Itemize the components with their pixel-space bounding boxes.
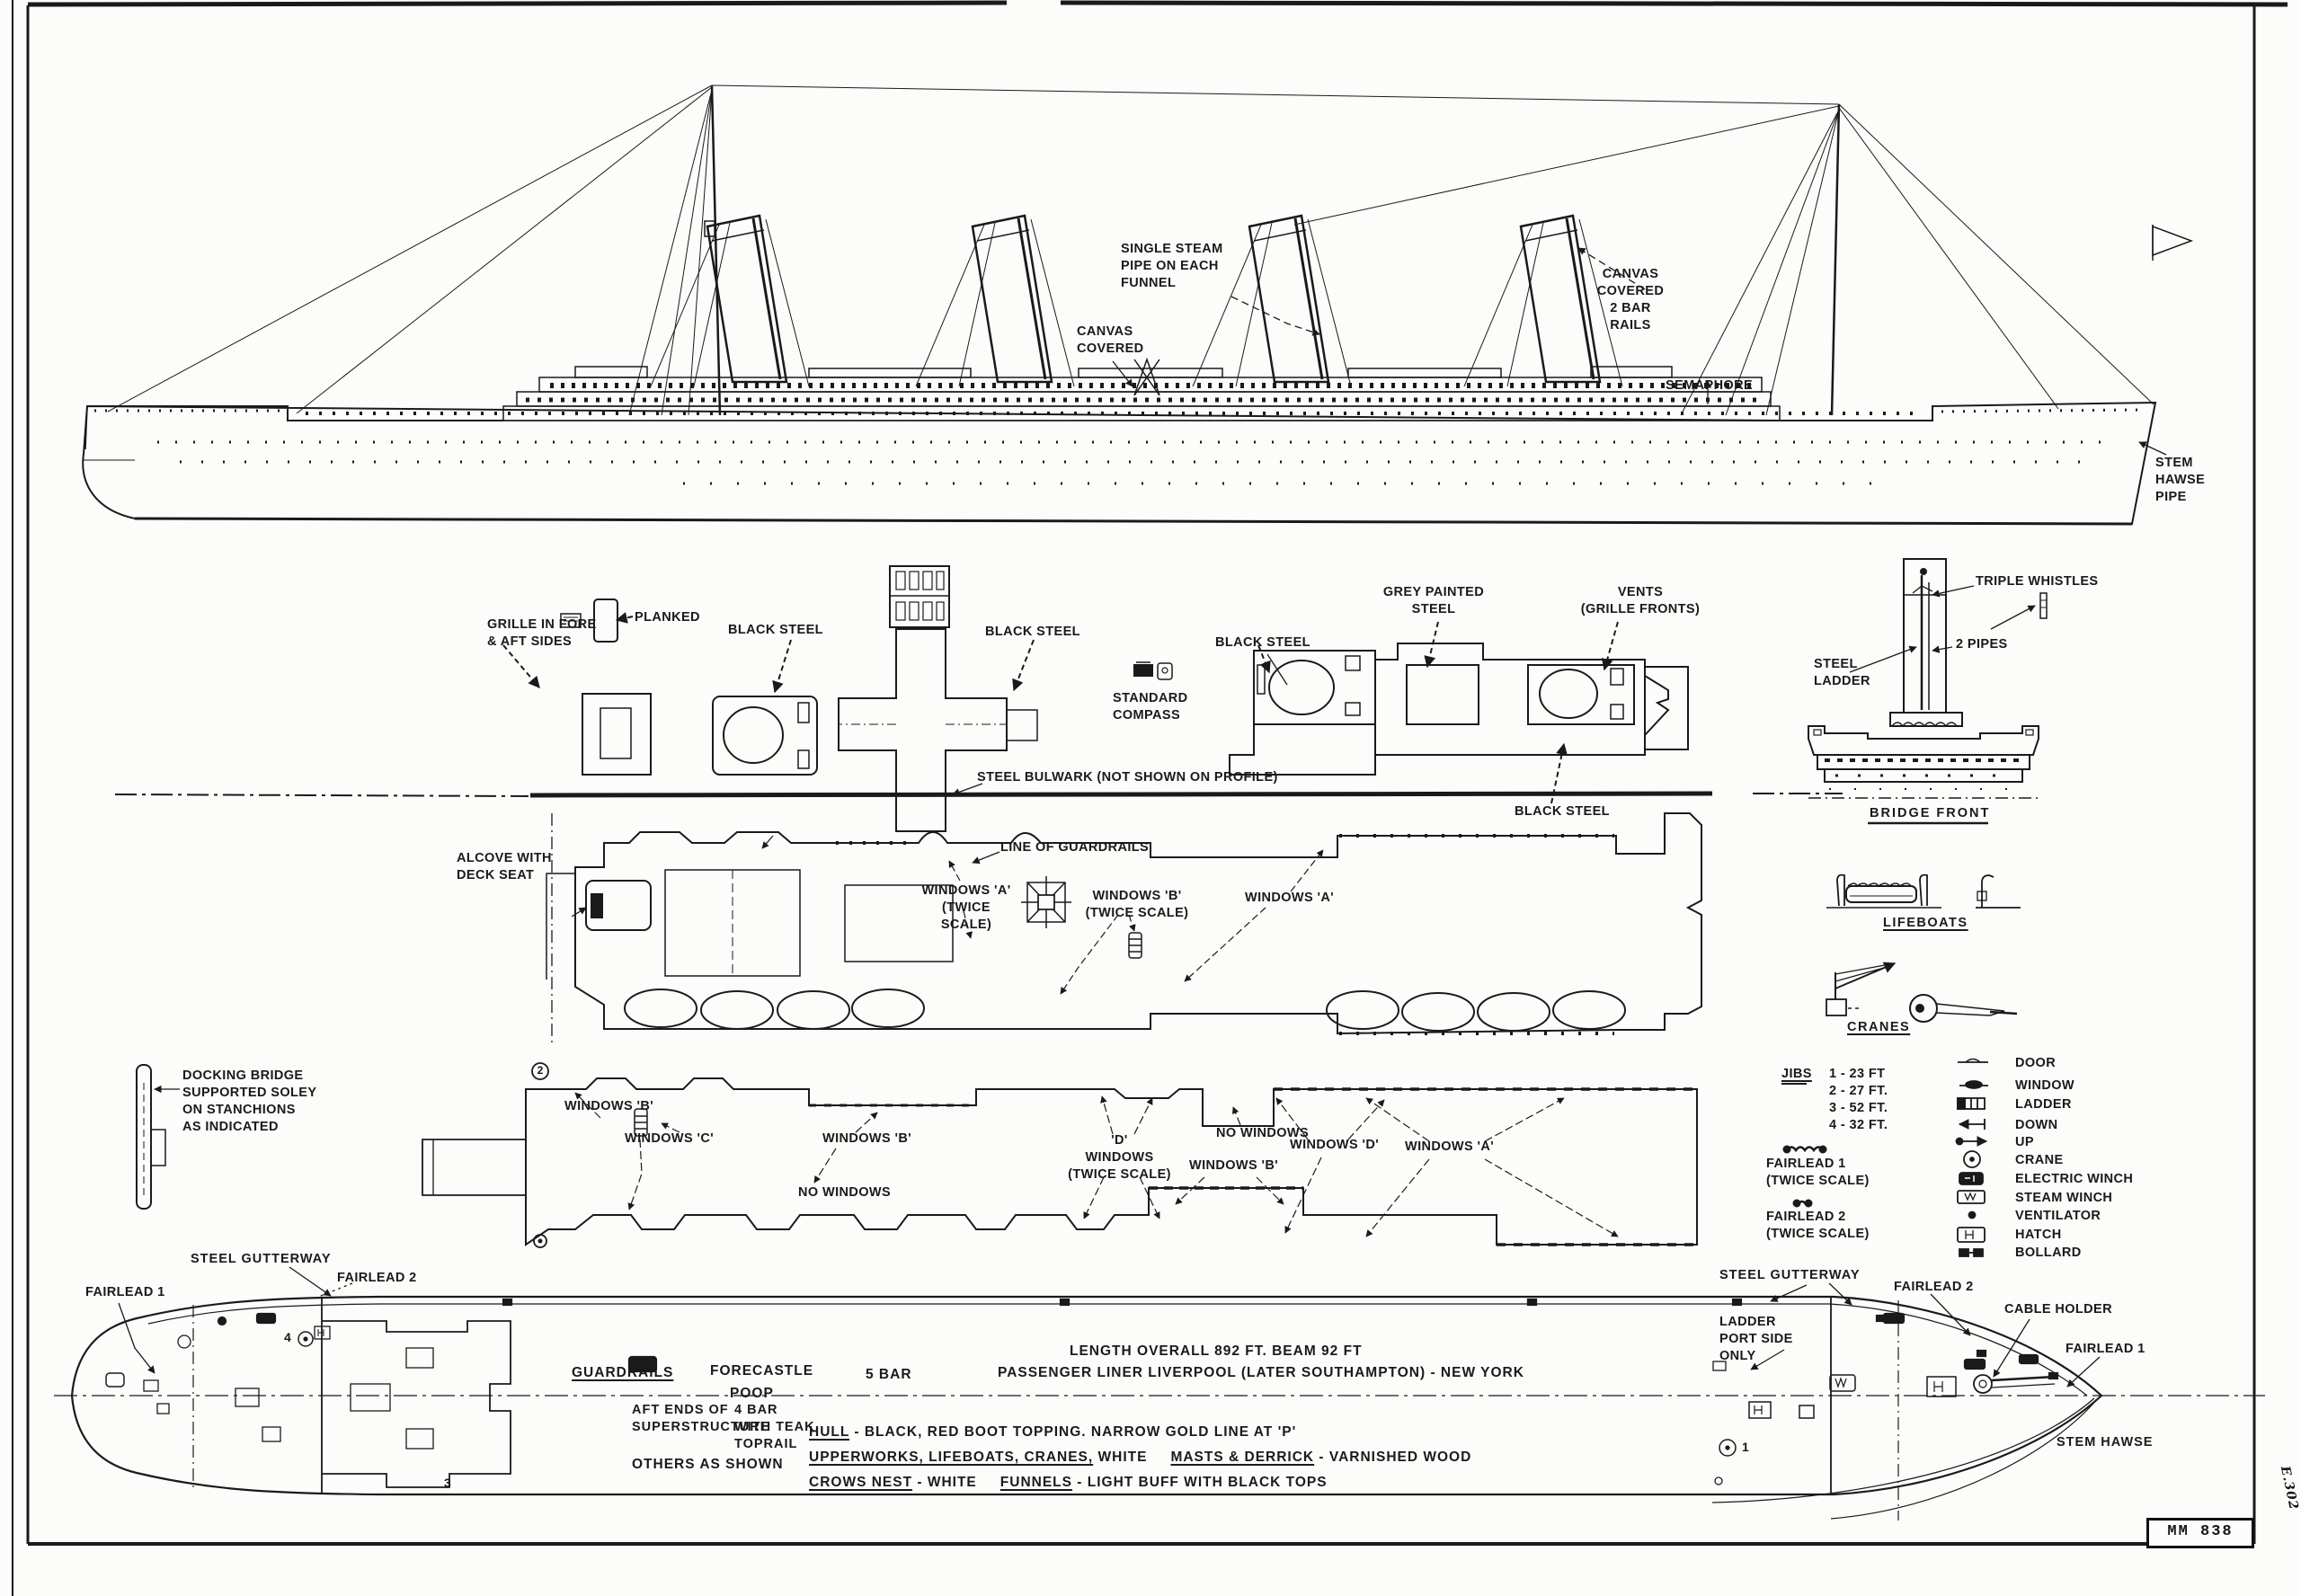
label-black-steel-4: BLACK STEEL — [1515, 803, 1610, 820]
window-symbol — [1959, 1081, 1988, 1088]
label-lifeboats: LIFEBOATS — [1883, 915, 1968, 932]
label-stem-hawse-pipe: STEM HAWSE PIPE — [2155, 455, 2205, 506]
label-steel-gutterway-right: STEEL GUTTERWAY — [1719, 1267, 1861, 1284]
legend-label-window: WINDOW — [2015, 1077, 2074, 1095]
label-semaphore: SEMAPHORE — [1666, 377, 1753, 395]
spec-liner-route: PASSENGER LINER LIVERPOOL (LATER SOUTHAM… — [998, 1364, 1524, 1382]
legend-label-hatch: HATCH — [2015, 1227, 2062, 1244]
up-symbol — [1957, 1139, 1987, 1145]
promenade-deck-plan — [422, 1063, 1697, 1247]
compass-platform-symbol — [1021, 876, 1071, 928]
funnel-2 — [916, 216, 1074, 386]
label-line-of-guardrails: LINE OF GUARDRAILS — [1000, 839, 1149, 856]
label-windows-b-twice: WINDOWS 'B' (TWICE SCALE) — [1083, 888, 1191, 922]
label-no-windows-1: NO WINDOWS — [798, 1184, 891, 1201]
label-vents: VENTS (GRILLE FRONTS) — [1564, 584, 1717, 618]
label-docking-bridge: DOCKING BRIDGE SUPPORTED SOLEY ON STANCH… — [182, 1068, 316, 1135]
legend-label-crane: CRANE — [2015, 1152, 2064, 1169]
label-cable-holder: CABLE HOLDER — [2004, 1301, 2112, 1318]
label-windows-b-1: WINDOWS 'B' — [564, 1098, 653, 1115]
spec-length-beam: LENGTH OVERALL 892 FT. BEAM 92 FT — [1070, 1343, 1363, 1361]
spec-forecastle: FORECASTLE — [710, 1362, 813, 1380]
label-fairlead-1-right: FAIRLEAD 1 — [2066, 1341, 2146, 1358]
label-ladder-port-side: LADDER PORT SIDE ONLY — [1719, 1314, 1793, 1365]
drawing-number-box: MM 838 — [2146, 1518, 2254, 1548]
label-stem-hawse: STEM HAWSE — [2057, 1434, 2153, 1451]
label-standard-compass: STANDARD COMPASS — [1113, 690, 1187, 724]
label-windows-c: WINDOWS 'C' — [625, 1130, 714, 1148]
marker-deck-3: 3 — [444, 1476, 451, 1490]
label-black-steel-3: BLACK STEEL — [1215, 634, 1310, 652]
label-windows-b-2: WINDOWS 'B' — [822, 1130, 911, 1148]
legend-label-steam-winch: STEAM WINCH — [2015, 1190, 2112, 1207]
stern-pennant-flag — [2153, 226, 2191, 255]
docking-bridge-detail — [137, 1065, 180, 1209]
label-fairlead-2-right: FAIRLEAD 2 — [1894, 1279, 1974, 1296]
lifeboats-detail — [1826, 875, 2021, 908]
cable-holder-symbol — [1974, 1375, 2055, 1393]
spec-crows-word: CROWS NEST — [809, 1475, 912, 1490]
label-grille-fore-aft: GRILLE IN FORE & AFT SIDES — [487, 616, 597, 651]
jibs-row-2: 2 - 27 FT. — [1829, 1083, 1888, 1100]
jibs-row-4: 4 - 32 FT. — [1829, 1117, 1888, 1134]
ladder-symbol — [1958, 1098, 1985, 1109]
label-fairlead-2-left: FAIRLEAD 2 — [337, 1270, 417, 1287]
funnel-1 — [651, 216, 809, 386]
label-jibs-title: JIBS — [1781, 1066, 1812, 1083]
bollard-symbol — [1959, 1249, 1983, 1256]
legend-label-ladder: LADDER — [2015, 1096, 2072, 1113]
label-d-windows-twice: 'D' WINDOWS (TWICE SCALE) — [1068, 1132, 1171, 1184]
spec-funnels-word: FUNNELS — [1000, 1475, 1072, 1490]
label-black-steel-2: BLACK STEEL — [985, 624, 1080, 641]
label-windows-a-boatdeck: WINDOWS 'A' — [1245, 890, 1334, 907]
funnel-base-details — [503, 566, 1688, 831]
electric-winch-symbol — [1959, 1173, 1983, 1184]
label-windows-a-twice: WINDOWS 'A' (TWICE SCALE) — [917, 882, 1016, 934]
label-grey-painted-steel: GREY PAINTED STEEL — [1366, 584, 1501, 618]
spec-five-bar: 5 BAR — [866, 1366, 912, 1384]
legend-label-down: DOWN — [2015, 1117, 2058, 1134]
label-windows-a-promenade: WINDOWS 'A' — [1405, 1139, 1494, 1156]
label-alcove-deck-seat: ALCOVE WITH DECK SEAT — [457, 850, 552, 884]
spec-others: OTHERS AS SHOWN — [632, 1456, 784, 1474]
spec-funnels-rest: - LIGHT BUFF WITH BLACK TOPS — [1072, 1475, 1328, 1490]
label-black-steel-1: BLACK STEEL — [728, 622, 823, 639]
cranes-detail — [1826, 963, 2017, 1022]
ventilator-symbol — [1969, 1212, 1976, 1219]
spec-crows-nest-colour: CROWS NEST - WHITEFUNNELS - LIGHT BUFF W… — [809, 1456, 1328, 1492]
standard-compass-symbol — [1134, 662, 1172, 679]
door-symbol — [1958, 1060, 1988, 1063]
label-canvas-covered-rails: CANVAS COVERED 2 BAR RAILS — [1589, 266, 1672, 333]
ship-profile — [83, 85, 2191, 524]
legend-label-electric-winch: ELECTRIC WINCH — [2015, 1171, 2133, 1188]
legend-label-door: DOOR — [2015, 1055, 2056, 1072]
window-stack-symbol — [1129, 933, 1142, 958]
spec-guardrails: GUARDRAILS — [572, 1364, 673, 1382]
label-windows-d: WINDOWS 'D' — [1290, 1137, 1379, 1154]
legend-symbols — [1957, 1060, 1989, 1257]
legend-label-ventilator: VENTILATOR — [2015, 1208, 2101, 1225]
label-fairlead-1-detail: FAIRLEAD 1 (TWICE SCALE) — [1766, 1156, 1870, 1190]
jibs-row-3: 3 - 52 FT. — [1829, 1100, 1888, 1117]
spec-masts-rest: - VARNISHED WOOD — [1314, 1450, 1471, 1465]
label-fairlead-2-detail: FAIRLEAD 2 (TWICE SCALE) — [1766, 1209, 1870, 1243]
label-steel-gutterway-left: STEEL GUTTERWAY — [191, 1251, 332, 1268]
legend-label-bollard: BOLLARD — [2015, 1245, 2082, 1262]
label-windows-b-3: WINDOWS 'B' — [1189, 1157, 1278, 1175]
marker-crane-1: 1 — [1742, 1440, 1749, 1454]
spec-poop: POOP — [730, 1385, 774, 1403]
legend-label-up: UP — [2015, 1134, 2034, 1151]
label-steel-ladder: STEEL LADDER — [1814, 656, 1870, 690]
down-symbol — [1959, 1119, 1985, 1130]
label-single-steam-pipe: SINGLE STEAM PIPE ON EACH FUNNEL — [1121, 241, 1223, 292]
spec-four-bar: 4 BAR WITH TEAK TOPRAIL — [734, 1402, 815, 1453]
label-two-pipes: 2 PIPES — [1956, 636, 2008, 653]
mainmast — [1832, 104, 1839, 415]
steam-winch-symbol — [1958, 1191, 1985, 1203]
label-bridge-front: BRIDGE FRONT — [1870, 805, 1990, 822]
marker-deck-2: 2 — [532, 1063, 548, 1079]
spec-crows-mid: - WHITE — [912, 1475, 977, 1490]
label-canvas-covered: CANVAS COVERED — [1077, 324, 1144, 358]
crane-symbol — [1964, 1151, 1980, 1167]
label-steel-bulwark: STEEL BULWARK (NOT SHOWN ON PROFILE) — [977, 769, 1278, 786]
label-triple-whistles: TRIPLE WHISTLES — [1976, 573, 2099, 590]
jibs-row-1: 1 - 23 FT — [1829, 1066, 1885, 1083]
marker-crane-4: 4 — [284, 1330, 291, 1344]
hatch-symbol — [1958, 1228, 1985, 1242]
label-cranes: CRANES — [1847, 1019, 1910, 1036]
label-planked: PLANKED — [635, 609, 700, 626]
plans-sheet: SINGLE STEAM PIPE ON EACH FUNNEL CANVAS … — [0, 0, 2301, 1596]
bridge-front-detail — [1808, 559, 2047, 823]
label-fairlead-1-left: FAIRLEAD 1 — [85, 1284, 165, 1301]
